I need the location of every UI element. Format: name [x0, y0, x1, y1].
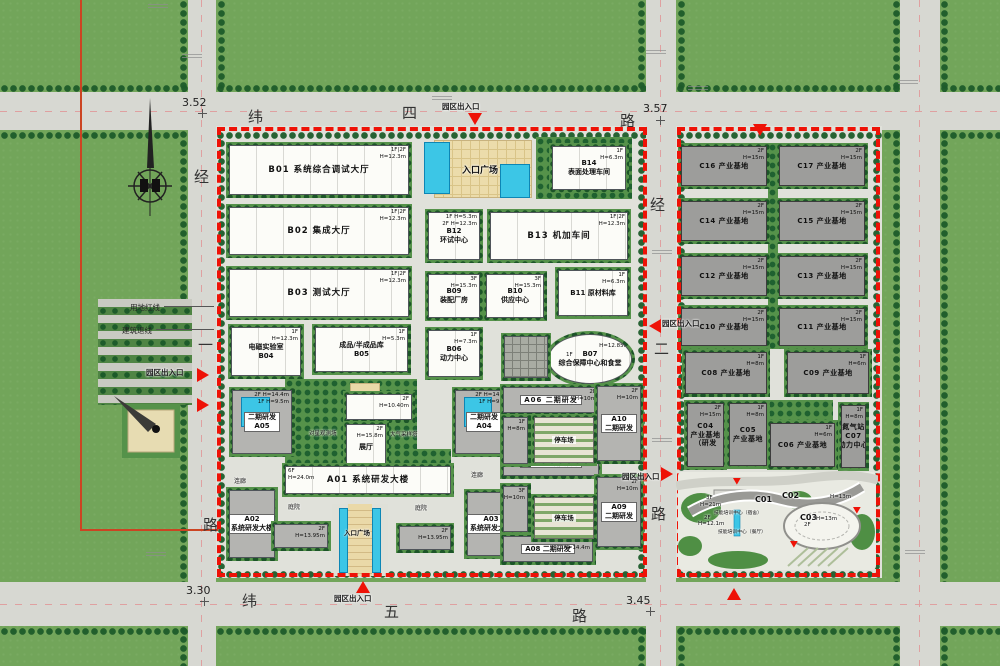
- road-jing-er: [646, 0, 676, 666]
- building-annotation: 1FH=6.3m: [600, 148, 623, 161]
- map-label: 庭院: [415, 503, 427, 512]
- building-label: C15 产业基地: [797, 217, 846, 226]
- building-annotation: 2FH=15m: [743, 148, 764, 161]
- building-label: B14: [581, 159, 596, 168]
- tree-row: [179, 626, 187, 666]
- building-C09: 1FH=6mC09 产业基地: [784, 349, 872, 397]
- building-body: 1FH=6mC06 产业基地: [770, 423, 835, 467]
- building-label: A10: [605, 415, 633, 424]
- building-annotation: 1F|2FH=12.3m: [380, 271, 406, 284]
- building-wing-east: 2FH=13.95m: [396, 523, 454, 553]
- north-compass-icon: [126, 98, 176, 218]
- map-label: 入口广场: [462, 163, 498, 176]
- building-label: A06 二期研发: [524, 396, 578, 405]
- building-body: 1FH=8m氮气站C07动力中心: [841, 405, 866, 468]
- entrance-triangle-icon: [468, 113, 482, 125]
- building-A05: 2F H=14.4m1F H=9.5m二期研发A05: [229, 387, 295, 457]
- tree-row: [216, 627, 646, 635]
- building-body: 停车场: [534, 497, 594, 539]
- land-line-thin: [80, 0, 82, 530]
- survey-annotation: [148, 4, 168, 9]
- building-A10: 2FH=10mA10二期研发: [594, 383, 644, 464]
- road-label-char: 二: [654, 338, 670, 359]
- building-body: 停车场: [534, 417, 594, 463]
- building-label: C14 产业基地: [699, 217, 748, 226]
- building-annotation: 2FH=15m: [841, 310, 862, 323]
- building-body: 2FH=13.95m: [399, 526, 451, 550]
- building-C17: 2FH=15mC17 产业基地: [776, 143, 868, 189]
- road-centerline: [660, 0, 661, 666]
- building-annotation: 1FH=12.3m: [272, 329, 298, 342]
- building-body: 1F|2FH=12.3mB02 集成大厅: [229, 207, 409, 255]
- building-C11: 2FH=15mC11 产业基地: [776, 305, 868, 349]
- building-B01: 1F|2FH=12.3mB01 系统综合调试大厅: [226, 142, 412, 198]
- entrance-triangle-icon: [733, 478, 741, 485]
- building-label: C13 产业基地: [797, 272, 846, 281]
- south-entrance-plaza: [332, 504, 388, 576]
- building-annotation: 3FH=15.3m: [451, 276, 477, 289]
- tree-row: [217, 139, 225, 569]
- survey-annotation: [182, 54, 202, 59]
- building-C14: 2FH=15mC14 产业基地: [678, 198, 770, 244]
- tree-row: [637, 626, 645, 666]
- building-annotation: 2FH=10m: [617, 388, 638, 401]
- building-label-plate: A06 二期研发: [520, 395, 582, 406]
- building-label: 动力中心: [841, 441, 866, 450]
- map-label: H=21m: [700, 502, 721, 508]
- road-label-char: 五: [384, 601, 400, 622]
- building-label: C05: [740, 426, 756, 435]
- building-annotation: 2FH=10.40m: [379, 396, 409, 409]
- building-annotation: 1FH=8m: [746, 405, 764, 418]
- building-body: 2FH=15mC13 产业基地: [779, 256, 865, 296]
- tree-row: [940, 627, 1000, 635]
- building-label: 产业基地: [733, 435, 763, 444]
- building-label: C04: [697, 422, 713, 431]
- building-label: B02 集成大厅: [287, 226, 350, 237]
- entrance-triangle-icon: [661, 467, 673, 481]
- building-tower: 2FH=10.40m: [343, 391, 415, 423]
- building-body: 1F|2FH=12.3mB03 测试大厅: [229, 269, 409, 317]
- building-annotation: 2FH=10m: [575, 389, 596, 402]
- building-label-plate: 二期研发A04: [466, 412, 502, 432]
- entrance-label: 园区出入口: [442, 101, 480, 112]
- map-label: 连廊: [234, 476, 246, 485]
- tree-row: [892, 130, 900, 582]
- land-line-thin: [80, 529, 218, 531]
- building-label: 综合保障中心和食堂: [559, 359, 622, 368]
- building-annotation: 6FH=24.0m: [288, 468, 314, 481]
- building-label: 环试中心: [440, 236, 468, 245]
- tree-row: [940, 626, 948, 666]
- building-annotation: 1F|2FH=12.3m: [380, 147, 406, 160]
- building-annotation: 2FH=15m: [743, 310, 764, 323]
- building-body: 2FH=15mC11 产业基地: [779, 308, 865, 346]
- road-label-char: 经: [650, 194, 666, 215]
- entrance-triangle-icon: [356, 581, 370, 593]
- setback-line-label: 建筑退线: [122, 325, 152, 336]
- building-annotation: 3FH=15.3m: [515, 276, 541, 289]
- building-C13: 2FH=15mC13 产业基地: [776, 253, 868, 299]
- building-body: 1F H=5.3m2F H=12.3mB12环试中心: [428, 212, 480, 260]
- water-pool: [424, 142, 450, 194]
- survey-annotation: [652, 250, 672, 255]
- entrance-label: 园区出入口: [146, 367, 184, 378]
- building-body: 1FH=6mC09 产业基地: [787, 352, 869, 394]
- plaza-walk: [348, 504, 372, 576]
- building-body: 3FH=15.3mB09装配厂房: [428, 274, 480, 318]
- building-annotation: 2FH=15m: [841, 203, 862, 216]
- map-label: 入口广场: [344, 527, 370, 537]
- water-strip: [339, 508, 348, 573]
- monument-plaza: [112, 396, 190, 464]
- road-centerline: [0, 604, 1000, 605]
- building-A06: 2FH=10mA06 二期研发: [500, 384, 602, 416]
- building-label: 停车场: [552, 436, 576, 444]
- building-label-plate: A10二期研发: [601, 414, 637, 434]
- water-strip: [372, 508, 381, 573]
- building-annotation: 2FH=13.95m: [418, 528, 448, 541]
- building-body: 1FH=6.3mB11 原材料库: [558, 270, 628, 316]
- elevation-label: 3.57: [643, 102, 668, 115]
- survey-annotation: [905, 550, 925, 555]
- survey-annotation: [898, 80, 918, 85]
- building-body: 2FH=15mC14 产业基地: [681, 201, 767, 241]
- map-label: 连廊: [471, 470, 483, 479]
- building-body: 2FH=10mA09二期研发: [597, 477, 641, 547]
- building-body: 2FH=10mA10二期研发: [597, 386, 641, 461]
- building-body: 1FH=7.3mB06动力中心: [428, 330, 480, 377]
- tree-row: [677, 0, 685, 92]
- building-B04: 1FH=12.3m电磁实验室B04: [228, 324, 304, 379]
- building-label-plate: A02系统研发大楼: [229, 514, 275, 534]
- road-label-char: 路: [651, 503, 667, 524]
- building-A09: 2FH=10mA09二期研发: [594, 474, 644, 550]
- building-annotation: 1FH=6m: [848, 354, 866, 367]
- building-annotation: 3FH=10m: [504, 488, 525, 501]
- entrance-label: 园区出入口: [622, 471, 660, 482]
- building-body: 1FH=12.3m电磁实验室B04: [231, 327, 301, 376]
- entrance-triangle-icon: [197, 368, 209, 382]
- building-label: A01 系统研发大楼: [327, 475, 409, 486]
- building-body: 3FH=10m: [503, 486, 528, 532]
- building-label: A09: [605, 503, 633, 512]
- building-annotation: 2F H=14.4m1F H=9.5m: [254, 392, 289, 405]
- road-centerline: [919, 0, 920, 666]
- tree-row: [676, 84, 900, 92]
- map-label: H=13m: [830, 494, 851, 500]
- building-label: 表面处理车间: [568, 168, 610, 177]
- building-label: C06 产业基地: [778, 441, 827, 450]
- building-label: B03 测试大厅: [287, 288, 350, 299]
- building-label: 二期研发: [605, 512, 633, 521]
- building-label: B12: [446, 227, 461, 236]
- building-body: 1FH=8mC05产业基地: [729, 403, 767, 466]
- building-label: A05: [248, 422, 276, 431]
- building-annotation: 1FH=6.3m: [602, 272, 625, 285]
- entrance-triangle-icon: [649, 319, 661, 333]
- building-body: 3FH=15.3mB10供应中心: [486, 274, 544, 318]
- map-label: H=12.1m: [698, 521, 724, 527]
- building-body: A02系统研发大楼: [229, 490, 275, 558]
- building-label: 二期研发: [248, 413, 276, 422]
- building-label: C17 产业基地: [797, 162, 846, 171]
- land-red-line-label: 用地红线: [130, 302, 160, 313]
- map-label: 技能培训中心（餐厅）: [718, 528, 766, 535]
- building-B03: 1F|2FH=12.3mB03 测试大厅: [226, 266, 412, 320]
- west-parking-rows: [98, 299, 192, 405]
- building-C12: 2FH=15mC12 产业基地: [678, 253, 770, 299]
- survey-annotation: [652, 438, 672, 443]
- building-label: B01 系统综合调试大厅: [268, 165, 369, 176]
- building-C16: 2FH=15mC16 产业基地: [678, 143, 770, 189]
- tree-row: [216, 84, 646, 92]
- building-annotation: 2FH=15.8m: [357, 426, 383, 439]
- road-label-char: 路: [203, 514, 219, 535]
- building-A01: 6FH=24.0mA01 系统研发大楼: [282, 463, 454, 497]
- elevation-label: 3.52: [182, 96, 207, 109]
- road-label-char: 纬: [248, 106, 264, 127]
- building-body: [504, 336, 548, 378]
- map-label: 庭院: [288, 502, 300, 511]
- building-C15: 2FH=15mC15 产业基地: [776, 198, 868, 244]
- building-label: C09 产业基地: [803, 369, 852, 378]
- building-B12: 1F H=5.3m2F H=12.3mB12环试中心: [425, 209, 483, 263]
- building-label: B13 机加车间: [527, 231, 590, 242]
- building-label: 系统研发大楼: [231, 524, 273, 533]
- building-label: 二期研发: [470, 413, 498, 422]
- building-annex-3F: 3FH=10m: [500, 483, 531, 535]
- building-label: 氮气站: [842, 423, 865, 432]
- building-annotation: 1FH=8m: [845, 407, 863, 420]
- entrance-label: 园区出入口: [334, 593, 372, 604]
- tree-row: [892, 626, 900, 666]
- building-body: 1F|2FH=12.3mB01 系统综合调试大厅: [229, 145, 409, 195]
- building-annotation: 2FH=15m: [841, 258, 862, 271]
- map-label: 1F: [566, 352, 573, 358]
- building-label: 供应中心: [501, 296, 529, 305]
- building-label: 成品/半成品库: [339, 341, 384, 350]
- entrance-triangle-icon: [197, 398, 209, 412]
- building-body: 2FH=15mC15 产业基地: [779, 201, 865, 241]
- building-body: 2FH=15mC17 产业基地: [779, 146, 865, 186]
- tree-row: [940, 0, 948, 92]
- building-annotation: 1F|2FH=12.3m: [599, 214, 625, 227]
- building-body: 2FH=13.95m: [274, 524, 328, 548]
- building-body: 1FH=8mC08 产业基地: [685, 352, 767, 394]
- building-body: 1F|2FH=12.3mB13 机加车间: [490, 212, 628, 260]
- building-label: 电磁实验室: [249, 343, 284, 352]
- road-label-char: 四: [402, 102, 418, 123]
- building-wing-west: 2FH=13.95m: [271, 521, 331, 551]
- building-label: B04: [258, 352, 273, 361]
- building-B05: 1FH=5.3m成品/半成品库B05: [312, 324, 411, 375]
- building-label: C10 产业基地: [699, 323, 748, 332]
- tree-row: [940, 131, 1000, 139]
- building-annex-1F: 1FH=8m: [500, 414, 531, 467]
- tree-row: [0, 84, 188, 92]
- building-annotation: 2FH=15m: [743, 258, 764, 271]
- road-label-char: 路: [572, 605, 588, 626]
- leader-line: [164, 306, 214, 307]
- building-label: （研发: [694, 439, 717, 448]
- building-body: 2FH=10mA06 二期研发: [503, 387, 599, 413]
- building-label: 动力中心: [440, 354, 468, 363]
- building-B09: 3FH=15.3mB09装配厂房: [425, 271, 483, 321]
- road-label-char: 路: [620, 110, 636, 131]
- entrance-triangle-icon: [727, 588, 741, 600]
- building-label: C12 产业基地: [699, 272, 748, 281]
- building-B10: 3FH=15.3mB10供应中心: [483, 271, 547, 321]
- road-east: [900, 0, 940, 666]
- water-pool: [500, 164, 530, 198]
- building-parking-north: 停车场: [531, 414, 597, 466]
- building-label: B11 原材料库: [570, 289, 616, 298]
- building-body: 2F H=14.4m1F H=9.5m二期研发A05: [232, 390, 292, 454]
- building-body: 2FH=10.40m: [346, 394, 412, 420]
- tree-row: [892, 0, 900, 92]
- building-annotation: 1FH=5.3m: [382, 329, 405, 342]
- survey-annotation: [146, 552, 166, 557]
- entrance-triangle-icon: [753, 124, 767, 136]
- tree-row: [677, 626, 685, 666]
- building-body: 2FH=15mC04产业基地（研发: [687, 403, 724, 467]
- building-label: 二期研发: [605, 424, 633, 433]
- map-label: 技能培训中心（宿舍）: [714, 509, 762, 516]
- building-body: 1FH=8m: [503, 417, 528, 464]
- tree-row: [216, 570, 646, 578]
- tree-row: [676, 131, 900, 139]
- leader-line: [156, 329, 214, 330]
- building-body: 1FH=5.3m成品/半成品库B05: [315, 327, 408, 372]
- building-label: A04: [470, 422, 498, 431]
- building-annotation: 2FH=12.85m: [599, 336, 629, 349]
- building-B02: 1F|2FH=12.3mB02 集成大厅: [226, 204, 412, 258]
- building-B13: 1F|2FH=12.3mB13 机加车间: [487, 209, 631, 263]
- map-label: 对星观测场: [309, 429, 337, 437]
- building-body: 2FH=12.85mB07综合保障中心和食堂: [548, 334, 632, 384]
- building-label-plate: A09二期研发: [601, 502, 637, 522]
- survey-cross: [656, 116, 665, 125]
- building-label-plate: 二期研发A05: [244, 412, 280, 432]
- survey-annotation: [688, 86, 708, 91]
- building-B11: 1FH=6.3mB11 原材料库: [555, 267, 631, 319]
- survey-cross: [646, 607, 655, 616]
- building-label: 装配厂房: [440, 296, 468, 305]
- building-annotation: 1FH=7.3m: [454, 332, 477, 345]
- tree-row: [940, 130, 948, 582]
- building-body: 2FH=15mC16 产业基地: [681, 146, 767, 186]
- building-label: A02: [231, 515, 273, 524]
- map-label: H=13m: [816, 516, 837, 522]
- building-annotation: 1FH=6m: [814, 425, 832, 438]
- tree-row: [179, 0, 187, 92]
- lawn-patch: [767, 400, 833, 420]
- survey-cross: [198, 109, 207, 118]
- building-C05: 1FH=8mC05产业基地: [726, 400, 770, 469]
- survey-cross: [200, 597, 209, 606]
- building-annotation: 2FH=15m: [841, 148, 862, 161]
- road-label-char: 纬: [242, 590, 258, 611]
- map-label: C02: [782, 491, 799, 500]
- building-annotation: 1F H=5.3m2F H=12.3m: [442, 214, 477, 227]
- building-label: B05: [354, 350, 369, 359]
- building-C08: 1FH=8mC08 产业基地: [682, 349, 770, 397]
- road-label-char: 一: [198, 334, 214, 355]
- road-label-char: 经: [194, 166, 210, 187]
- building-B14: 1FH=6.3mB14表面处理车间: [549, 143, 629, 193]
- building-C06: 1FH=6mC06 产业基地: [767, 420, 838, 470]
- map-label: C03: [800, 513, 817, 522]
- survey-annotation: [646, 50, 666, 55]
- building-label: 停车场: [552, 514, 576, 522]
- building-body: 6FH=24.0mA01 系统研发大楼: [285, 466, 451, 494]
- map-label: 大气采样塔: [390, 430, 418, 438]
- building-body: 1FH=6.3mB14表面处理车间: [552, 146, 626, 190]
- building-label: C08 产业基地: [701, 369, 750, 378]
- building-annotation: 1FH=8m: [746, 354, 764, 367]
- elevation-label: 3.30: [186, 584, 211, 597]
- building-label: C11 产业基地: [797, 323, 846, 332]
- building-parking-south: 停车场: [531, 494, 597, 542]
- building-annotation: 1FH=8m: [507, 419, 525, 432]
- tree-row: [0, 627, 188, 635]
- building-B06: 1FH=7.3mB06动力中心: [425, 327, 483, 380]
- building-label: C07: [845, 432, 861, 441]
- map-label: 3F: [706, 495, 713, 501]
- building-body: 2FH=15mC12 产业基地: [681, 256, 767, 296]
- tree-row: [637, 0, 645, 92]
- entrance-triangle-icon: [853, 507, 861, 514]
- elevation-label: 3.45: [626, 594, 651, 607]
- building-label: B06: [446, 345, 461, 354]
- building-label: 展厅: [359, 443, 373, 452]
- building-grid-block: [501, 333, 551, 381]
- tree-row: [940, 84, 1000, 92]
- tree-row: [676, 627, 900, 635]
- entrance-triangle-icon: [790, 541, 798, 548]
- building-C04: 2FH=15mC04产业基地（研发: [684, 400, 727, 470]
- building-label: C16 产业基地: [699, 162, 748, 171]
- building-annotation: 2FH=15m: [700, 405, 721, 418]
- building-B07: 2FH=12.85mB07综合保障中心和食堂: [545, 331, 635, 387]
- map-label: 2F: [804, 522, 811, 528]
- building-label: B07: [582, 350, 597, 359]
- map-label: C01: [755, 495, 772, 504]
- building-annotation: 1F|2FH=12.3m: [380, 209, 406, 222]
- building-annotation: 2FH=15m: [743, 203, 764, 216]
- tree-row: [217, 0, 225, 92]
- site-master-plan: 纬 四 路 纬 五 路 经 一 路 经 二 路 3.52 3.57 3.30 3…: [0, 0, 1000, 666]
- building-annotation: 2FH=13.95m: [295, 526, 325, 539]
- entrance-label: 园区出入口: [662, 318, 700, 329]
- building-C07: 1FH=8m氮气站C07动力中心: [838, 402, 869, 471]
